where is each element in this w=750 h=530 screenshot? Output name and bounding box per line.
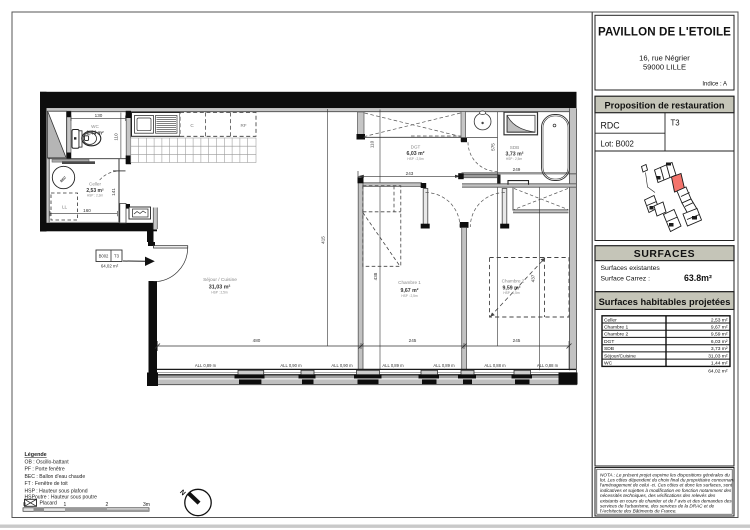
svg-text:63.8m²: 63.8m² [684, 273, 712, 283]
svg-text:Chambre 1: Chambre 1 [398, 280, 421, 285]
svg-text:415: 415 [321, 236, 326, 244]
svg-text:PF : Porte fenêtre: PF : Porte fenêtre [25, 467, 65, 473]
svg-text:Placard: Placard [40, 501, 57, 507]
svg-text:243: 243 [406, 171, 414, 176]
svg-text:ALL 0,89 m: ALL 0,89 m [382, 363, 404, 368]
svg-text:BEC : Ballon d'eau chaude: BEC : Ballon d'eau chaude [25, 474, 86, 480]
svg-text:575: 575 [491, 143, 496, 151]
svg-text:HSP : 2,5m: HSP : 2,5m [407, 157, 424, 161]
svg-text:HSP : 2,3m: HSP : 2,3m [87, 194, 104, 198]
svg-text:245: 245 [409, 338, 417, 343]
svg-text:6,03 m²: 6,03 m² [711, 339, 728, 345]
svg-text:Proposition de restauration: Proposition de restauration [605, 100, 725, 110]
svg-text:Chambre 2: Chambre 2 [604, 332, 628, 338]
svg-text:2: 2 [106, 502, 109, 508]
svg-text:1,44 m²: 1,44 m² [86, 131, 104, 137]
svg-text:Celler: Celler [89, 181, 101, 186]
svg-text:LL: LL [62, 205, 68, 210]
svg-text:DGT: DGT [604, 339, 614, 345]
svg-text:Surfaces existantes: Surfaces existantes [601, 265, 661, 272]
svg-text:0: 0 [23, 502, 26, 508]
svg-text:SDB: SDB [604, 346, 614, 352]
svg-text:HSP : 2,5m: HSP : 2,5m [211, 291, 228, 295]
svg-text:HSP : 2,5m: HSP : 2,5m [506, 157, 523, 161]
svg-text:ALL 0,90 m: ALL 0,90 m [280, 363, 302, 368]
svg-text:245: 245 [513, 338, 521, 343]
svg-text:1,44 m²: 1,44 m² [711, 361, 728, 367]
svg-text:Séjour / Cuisine: Séjour / Cuisine [203, 277, 237, 283]
svg-text:OB : Oscillo-battant: OB : Oscillo-battant [25, 459, 70, 465]
svg-text:B002: B002 [99, 254, 109, 259]
svg-text:Chambre 1: Chambre 1 [604, 325, 628, 331]
svg-text:PAVILLON DE L'ETOILE: PAVILLON DE L'ETOILE [598, 26, 731, 39]
svg-text:480: 480 [253, 338, 261, 343]
svg-text:RF: RF [240, 123, 246, 128]
svg-text:59000 LILLE: 59000 LILLE [643, 63, 686, 72]
svg-text:64,02 m²: 64,02 m² [708, 369, 728, 375]
svg-text:T3: T3 [114, 254, 120, 259]
svg-text:ALL 0,90 m: ALL 0,90 m [331, 363, 353, 368]
svg-text:l'Architecte des Bâtiments de: l'Architecte des Bâtiments de France. [600, 509, 677, 514]
svg-text:HSP : 2,5m: HSP : 2,5m [503, 291, 520, 295]
svg-text:HSP : 2,5m: HSP : 2,5m [401, 294, 418, 298]
svg-text:110: 110 [114, 133, 119, 141]
svg-text:9,67 m²: 9,67 m² [711, 325, 728, 331]
svg-text:3m: 3m [143, 502, 150, 508]
svg-text:SURFACES: SURFACES [634, 249, 695, 260]
svg-text:Légende: Légende [25, 452, 47, 458]
svg-text:438: 438 [373, 272, 378, 280]
svg-text:T3: T3 [671, 119, 680, 128]
svg-text:Celler: Celler [604, 317, 617, 323]
svg-text:141: 141 [111, 188, 116, 196]
svg-text:ALL 0,89 m: ALL 0,89 m [433, 363, 455, 368]
svg-text:FT : Fenêtre de toit: FT : Fenêtre de toit [25, 481, 69, 487]
svg-text:DGT: DGT [411, 144, 421, 149]
svg-text:ALL 0,88 m: ALL 0,88 m [484, 363, 506, 368]
svg-text:64,02 m²: 64,02 m² [101, 264, 119, 269]
svg-text:437: 437 [531, 274, 536, 282]
svg-text:16, rue Négrier: 16, rue Négrier [639, 54, 690, 63]
svg-text:Lot: B002: Lot: B002 [601, 140, 634, 149]
svg-text:Chambre 2: Chambre 2 [502, 279, 525, 284]
svg-text:31,03 m²: 31,03 m² [209, 284, 231, 290]
svg-text:160: 160 [83, 208, 91, 213]
svg-text:Indice : A: Indice : A [702, 82, 727, 88]
svg-text:3,73 m²: 3,73 m² [711, 346, 728, 352]
svg-text:ALL 0,89 m: ALL 0,89 m [195, 363, 217, 368]
svg-text:Surfaces habitables projetées: Surfaces habitables projetées [599, 297, 731, 307]
svg-text:WC: WC [604, 361, 613, 367]
svg-text:RDC: RDC [601, 121, 621, 131]
svg-text:SDB: SDB [510, 145, 519, 150]
svg-text:9,59 m²: 9,59 m² [711, 332, 728, 338]
svg-text:HSP : Hauteur sous plafond: HSP : Hauteur sous plafond [25, 489, 88, 495]
svg-text:249: 249 [513, 167, 521, 172]
svg-text:130: 130 [95, 113, 103, 118]
svg-text:Séjour/Cuisine: Séjour/Cuisine [604, 353, 636, 359]
svg-text:110: 110 [370, 140, 375, 148]
svg-text:31,03 m²: 31,03 m² [708, 353, 728, 359]
svg-text:ALL 0,88 m: ALL 0,88 m [537, 363, 559, 368]
svg-text:WC: WC [91, 124, 99, 129]
svg-text:2,53 m²: 2,53 m² [711, 317, 728, 323]
svg-text:9,67 m²: 9,67 m² [401, 288, 419, 294]
svg-text:Surface Carrez :: Surface Carrez : [601, 275, 651, 282]
svg-text:1: 1 [64, 502, 67, 508]
